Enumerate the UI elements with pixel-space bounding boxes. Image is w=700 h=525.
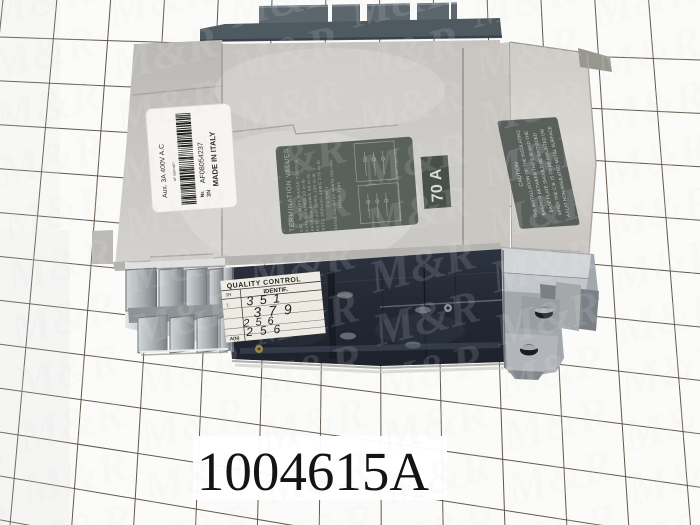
svg-text:1004615A: 1004615A xyxy=(197,441,430,502)
